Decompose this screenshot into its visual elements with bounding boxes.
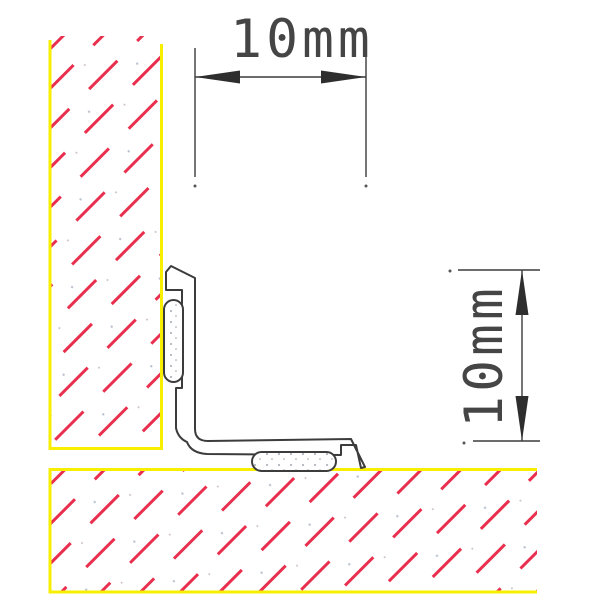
defpoint-dot xyxy=(463,442,466,445)
adhesive-pad-vertical xyxy=(164,300,183,382)
arrow-right-icon xyxy=(321,71,366,84)
arrow-down-icon xyxy=(516,396,529,441)
wall-section xyxy=(49,36,164,449)
arrow-left-icon xyxy=(195,71,240,84)
wall-hatch-fill xyxy=(51,36,161,448)
defpoint-dot xyxy=(449,270,452,273)
arrow-up-icon xyxy=(516,270,529,315)
floor-section xyxy=(49,469,538,592)
dimension-right: 10mm xyxy=(449,270,541,445)
defpoint-dot xyxy=(365,185,368,188)
trim-profile-outline xyxy=(166,266,365,468)
technical-drawing-canvas: 10mm 10mm xyxy=(0,0,600,600)
pad-horizontal-shape xyxy=(252,452,336,471)
floor-hatch-fill xyxy=(51,470,537,591)
dimension-right-label: 10mm xyxy=(454,284,515,428)
adhesive-pad-horizontal xyxy=(252,452,336,471)
trim-profile xyxy=(166,266,365,468)
pad-vertical-shape xyxy=(164,300,183,382)
dimension-top-label: 10mm xyxy=(230,9,374,70)
dimension-top: 10mm xyxy=(194,9,374,188)
section-drawing: 10mm 10mm xyxy=(0,0,600,600)
defpoint-dot xyxy=(194,185,197,188)
